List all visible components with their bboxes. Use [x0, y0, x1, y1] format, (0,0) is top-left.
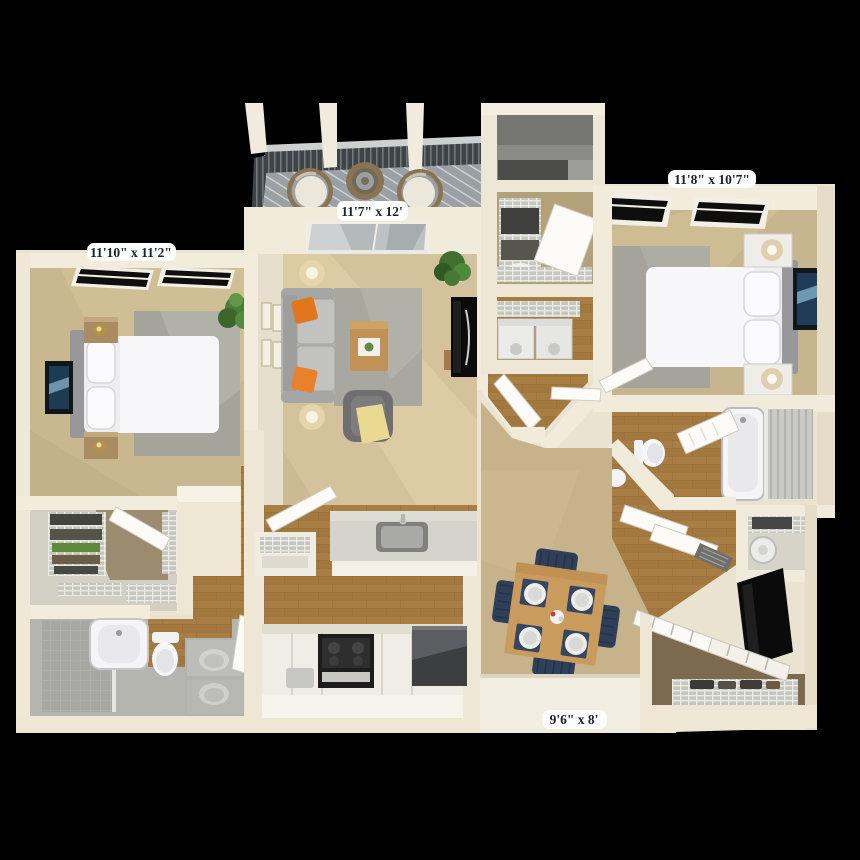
- svg-text:11'10" x 11'2": 11'10" x 11'2": [90, 245, 172, 260]
- svg-text:11'7" x 12': 11'7" x 12': [341, 204, 403, 219]
- svg-text:9'6" x 8': 9'6" x 8': [550, 712, 599, 727]
- svg-text:11'8" x 10'7": 11'8" x 10'7": [674, 172, 750, 187]
